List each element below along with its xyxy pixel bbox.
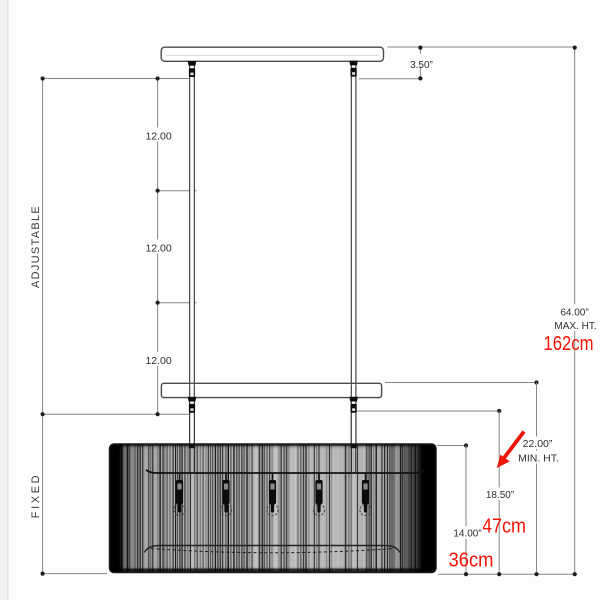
svg-text:47cm: 47cm xyxy=(482,516,526,538)
svg-text:FIXED: FIXED xyxy=(30,473,42,518)
svg-text:MIN. HT.: MIN. HT. xyxy=(518,453,559,465)
svg-text:162cm: 162cm xyxy=(544,333,594,355)
svg-text:12.00: 12.00 xyxy=(145,355,171,367)
svg-text:ADJUSTABLE: ADJUSTABLE xyxy=(30,205,42,288)
svg-text:MAX. HT.: MAX. HT. xyxy=(554,321,596,332)
svg-text:36cm: 36cm xyxy=(449,550,494,572)
svg-text:64.00”: 64.00” xyxy=(560,308,588,319)
svg-text:12.00: 12.00 xyxy=(145,243,171,255)
svg-text:3.50”: 3.50” xyxy=(410,60,433,71)
svg-text:22.00”: 22.00” xyxy=(523,438,553,450)
svg-text:14.00”: 14.00” xyxy=(453,529,481,540)
svg-text:12.00: 12.00 xyxy=(145,131,171,143)
svg-text:18.50”: 18.50” xyxy=(486,490,514,501)
